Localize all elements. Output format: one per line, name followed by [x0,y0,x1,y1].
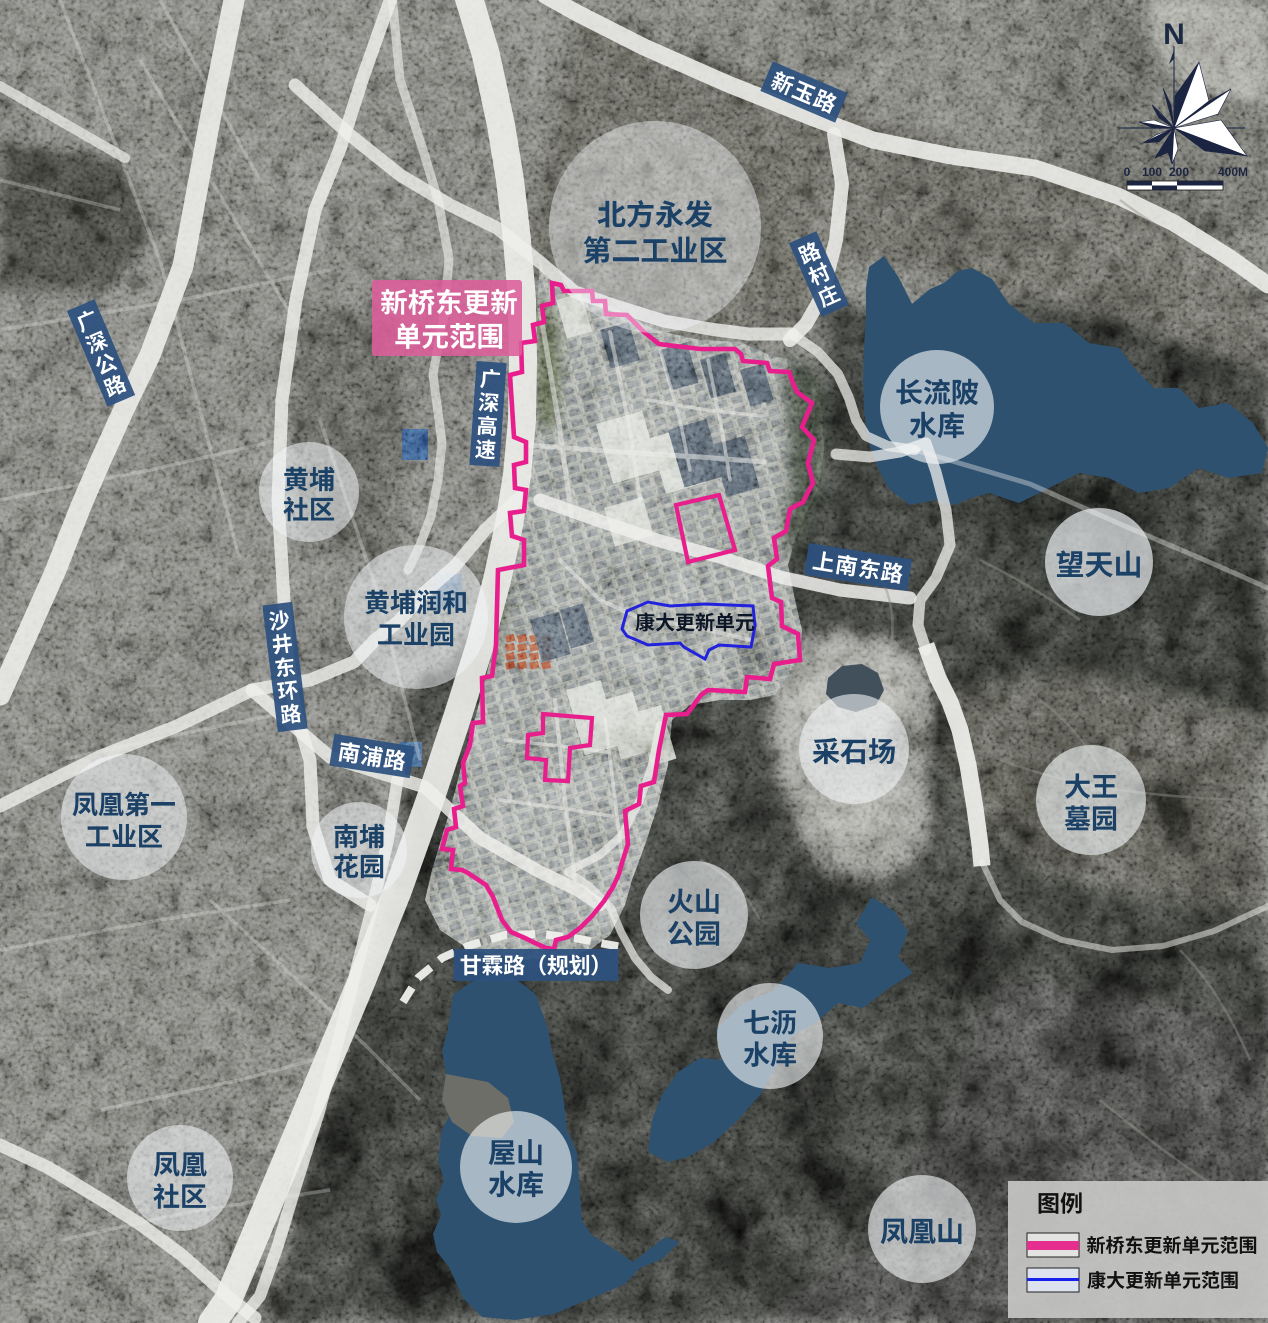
svg-text:N: N [1163,18,1185,51]
svg-text:200: 200 [1169,165,1189,179]
svg-text:400M: 400M [1218,165,1248,179]
svg-text:0: 0 [1124,165,1131,179]
svg-text:100: 100 [1142,165,1162,179]
